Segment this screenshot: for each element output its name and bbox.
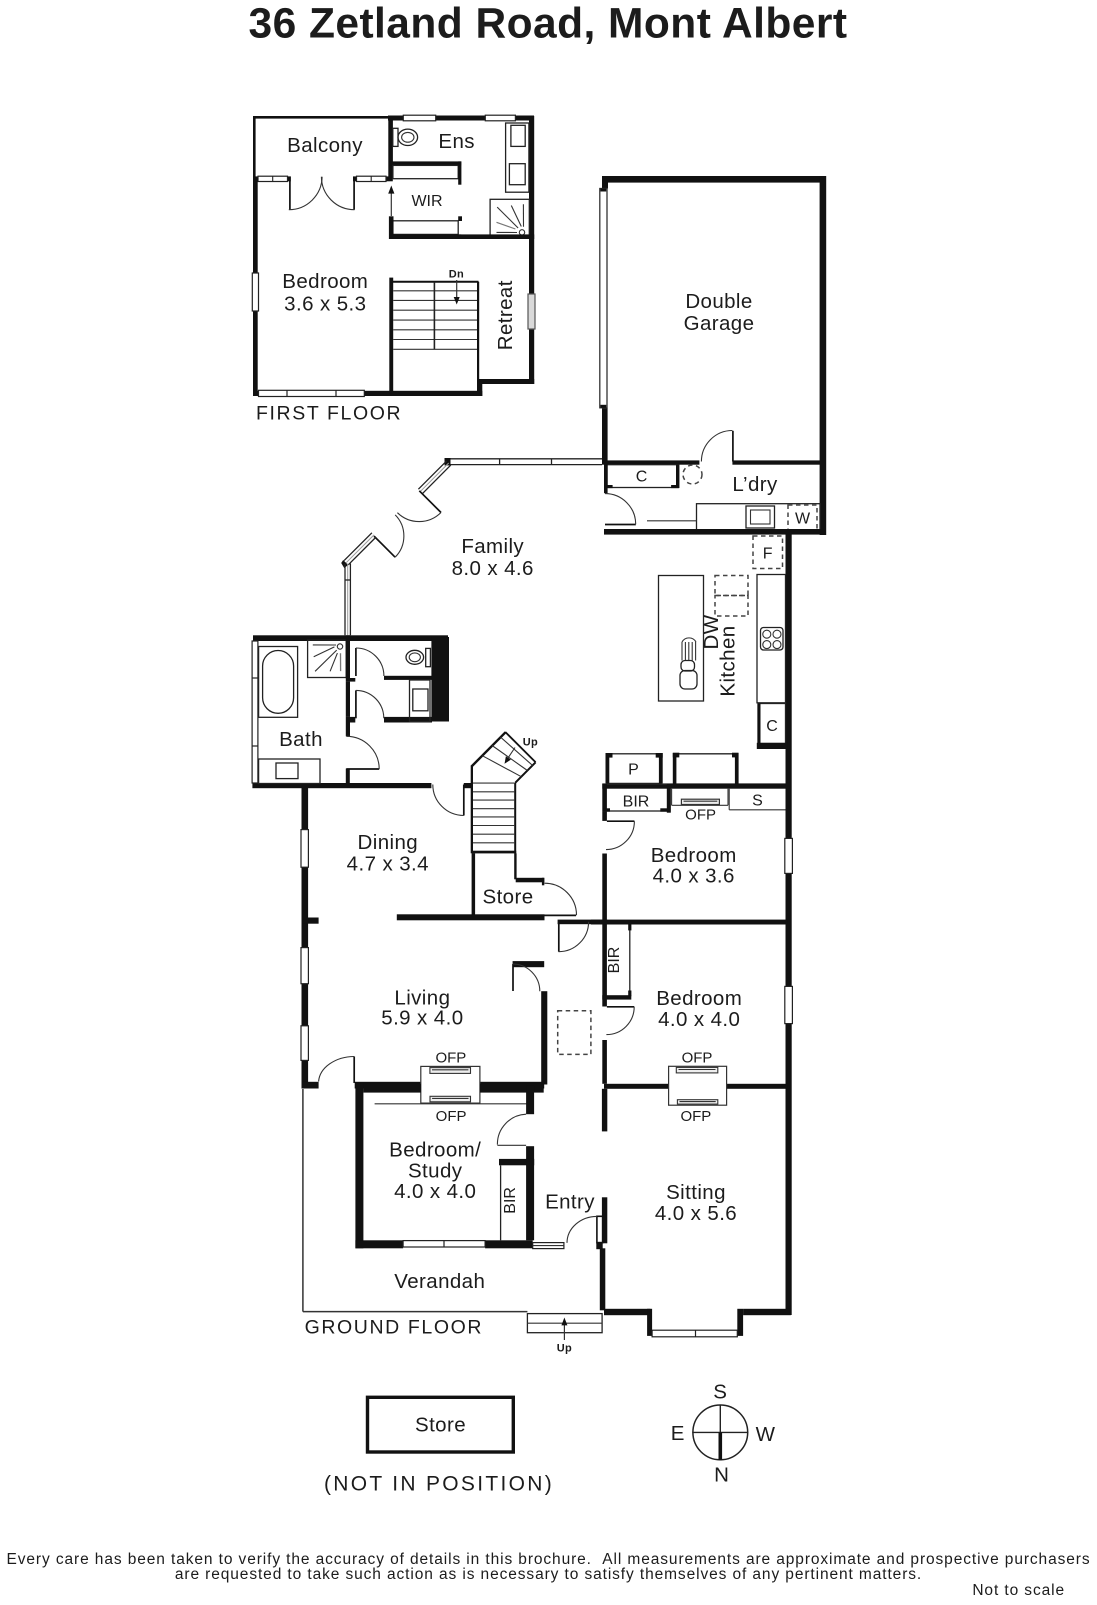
svg-text:Family: Family [461,535,524,558]
svg-text:W: W [756,1423,776,1446]
svg-text:3.6 x 5.3: 3.6 x 5.3 [284,293,366,316]
svg-text:Retreat: Retreat [494,280,517,350]
svg-text:Bedroom/: Bedroom/ [389,1139,481,1162]
svg-text:4.0 x 4.0: 4.0 x 4.0 [394,1180,476,1203]
svg-text:WIR: WIR [411,193,442,210]
svg-text:Kitchen: Kitchen [717,625,740,696]
svg-text:OFP: OFP [685,807,716,824]
svg-text:5.9 x 4.0: 5.9 x 4.0 [381,1007,463,1030]
svg-text:4.7 x 3.4: 4.7 x 3.4 [347,853,429,876]
svg-text:C: C [636,469,648,486]
svg-text:4.0 x 5.6: 4.0 x 5.6 [655,1202,737,1225]
svg-text:36 Zetland Road, Mont Albert: 36 Zetland Road, Mont Albert [249,1,848,48]
svg-text:BIR: BIR [606,947,623,974]
svg-text:Sitting: Sitting [666,1181,726,1204]
svg-text:OFP: OFP [436,1108,467,1125]
svg-text:OFP: OFP [680,1108,711,1125]
svg-text:4.0 x 3.6: 4.0 x 3.6 [653,865,735,888]
svg-text:F: F [763,546,773,563]
svg-text:Garage: Garage [684,312,755,335]
svg-text:Dn: Dn [449,269,464,281]
svg-text:Bath: Bath [279,728,323,751]
svg-text:BIR: BIR [502,1187,519,1214]
svg-text:are requested to take such act: are requested to take such action as is … [175,1566,922,1583]
svg-text:Up: Up [557,1343,572,1355]
svg-text:GROUND FLOOR: GROUND FLOOR [305,1317,483,1339]
svg-text:C: C [766,718,778,735]
svg-text:Balcony: Balcony [287,134,363,157]
svg-text:(NOT IN POSITION): (NOT IN POSITION) [324,1473,554,1496]
svg-text:BIR: BIR [623,794,650,811]
svg-text:Ens: Ens [438,130,475,153]
svg-text:4.0 x 4.0: 4.0 x 4.0 [658,1008,740,1031]
svg-text:Dining: Dining [358,831,419,854]
svg-text:Up: Up [523,737,538,749]
svg-text:W: W [795,511,811,528]
svg-text:Not to scale: Not to scale [972,1582,1065,1599]
svg-text:S: S [752,793,763,810]
svg-text:FIRST FLOOR: FIRST FLOOR [256,403,402,425]
svg-text:N: N [714,1464,729,1487]
svg-text:P: P [628,762,639,779]
svg-text:Entry: Entry [545,1191,595,1214]
svg-text:Store: Store [483,886,534,909]
svg-text:8.0 x 4.6: 8.0 x 4.6 [452,557,534,580]
svg-text:Double: Double [685,290,752,313]
svg-text:L’dry: L’dry [732,473,778,496]
svg-text:S: S [713,1381,727,1404]
svg-text:Bedroom: Bedroom [282,270,368,293]
svg-text:Store: Store [415,1414,466,1437]
svg-text:Bedroom: Bedroom [656,987,742,1010]
svg-text:Verandah: Verandah [394,1270,485,1293]
svg-text:OFP: OFP [682,1050,713,1067]
svg-text:OFP: OFP [435,1050,466,1067]
svg-text:E: E [671,1422,685,1445]
